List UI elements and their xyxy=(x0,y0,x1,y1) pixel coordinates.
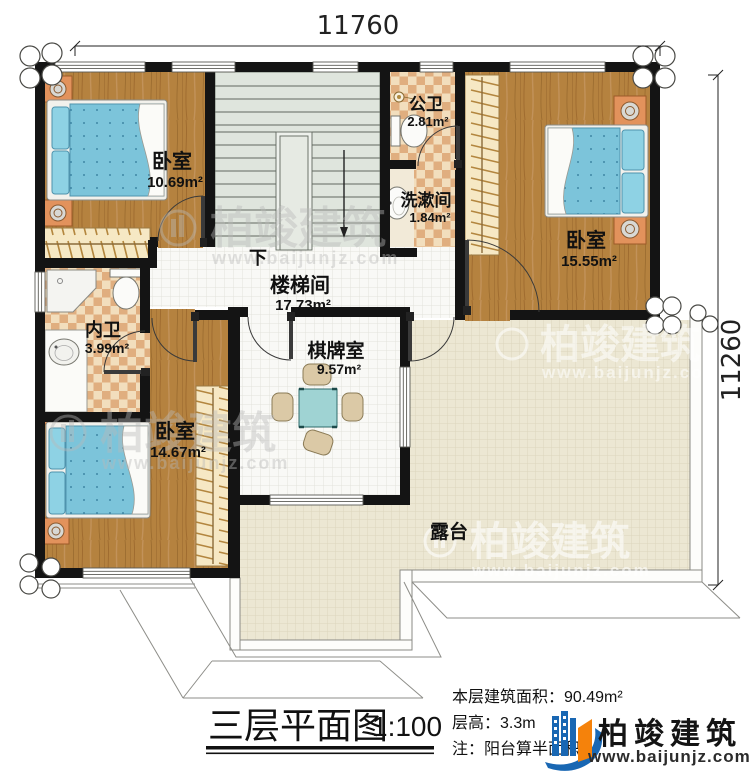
svg-text:9.57m²: 9.57m² xyxy=(317,361,362,377)
floor-height-note: 层高：3.3m xyxy=(452,714,536,732)
room-label-bedroom-topleft: 卧室 xyxy=(152,149,192,173)
svg-text:柏竣建筑: 柏竣建筑 xyxy=(540,323,700,367)
room-label-inner-bath: 内卫 xyxy=(85,319,121,340)
toilet-icon xyxy=(391,116,400,146)
svg-text:3.99m²: 3.99m² xyxy=(85,340,130,356)
room-label-bedroom-bottomleft: 卧室 xyxy=(155,419,195,443)
brand-name: 柏竣建筑 xyxy=(598,717,742,751)
room-label-stairwell: 楼梯间 xyxy=(270,273,330,297)
room-label-chess-room: 棋牌室 xyxy=(307,339,364,362)
floor-area-note: 本层建筑面积：90.49m² xyxy=(452,688,623,706)
stair-direction-label: 下 xyxy=(249,248,267,268)
bed xyxy=(545,125,750,217)
window xyxy=(55,62,145,72)
window xyxy=(313,62,358,72)
chair xyxy=(342,393,363,421)
floor-plan-drawing: 柏竣建筑 www.baijunjz.com 柏竣建筑 www.baijunjz.… xyxy=(0,0,750,776)
room-label-public-bath: 公卫 xyxy=(409,95,443,114)
brand-logo: 柏竣建筑 www.baijunjz.com xyxy=(545,711,750,771)
window xyxy=(420,62,453,72)
window xyxy=(83,568,190,578)
bedroom-topleft-furniture xyxy=(42,76,167,260)
window xyxy=(172,62,235,72)
pillow xyxy=(622,173,644,213)
svg-text:11760: 11760 xyxy=(317,11,400,41)
svg-text:11260: 11260 xyxy=(717,319,747,402)
pillow xyxy=(52,107,69,149)
svg-text:柏竣建筑: 柏竣建筑 xyxy=(210,204,386,253)
svg-text:14.67m²: 14.67m² xyxy=(150,444,206,461)
svg-text:www.baijunjz.com: www.baijunjz.com xyxy=(471,561,651,580)
svg-text:www.baijunjz.com: www.baijunjz.com xyxy=(541,363,721,382)
floor-plan-page: 柏竣建筑 www.baijunjz.com 柏竣建筑 www.baijunjz.… xyxy=(0,0,750,776)
window xyxy=(510,62,605,72)
svg-text:17.73m²: 17.73m² xyxy=(275,297,331,314)
pillow xyxy=(622,130,644,170)
pillow xyxy=(52,151,69,194)
svg-text:2.81m²: 2.81m² xyxy=(407,114,449,129)
balcony-note: 注：阳台算半面积 xyxy=(452,739,580,758)
brand-website: www.baijunjz.com xyxy=(587,747,750,766)
room-label-terrace: 露台 xyxy=(430,520,468,543)
game-table xyxy=(299,389,337,427)
room-label-bedroom-right: 卧室 xyxy=(566,228,606,252)
svg-text:10.69m²: 10.69m² xyxy=(147,174,203,191)
plan-scale: 1:100 xyxy=(372,711,442,742)
sink-icon xyxy=(49,339,79,365)
window xyxy=(400,367,410,447)
dimension-top: 11760 xyxy=(70,11,665,56)
plan-title: 三层平面图 xyxy=(208,705,388,746)
window xyxy=(35,272,45,312)
svg-text:15.55m²: 15.55m² xyxy=(561,253,617,270)
svg-text:柏竣建筑: 柏竣建筑 xyxy=(470,520,630,564)
pillow xyxy=(49,472,65,514)
svg-text:1.84m²: 1.84m² xyxy=(409,210,451,225)
window xyxy=(270,495,363,505)
terrace-floor-b xyxy=(240,505,410,640)
room-label-washroom: 洗漱间 xyxy=(401,190,452,210)
toilet-icon xyxy=(110,269,142,277)
svg-text:www.baijunjz.com: www.baijunjz.com xyxy=(211,248,399,268)
